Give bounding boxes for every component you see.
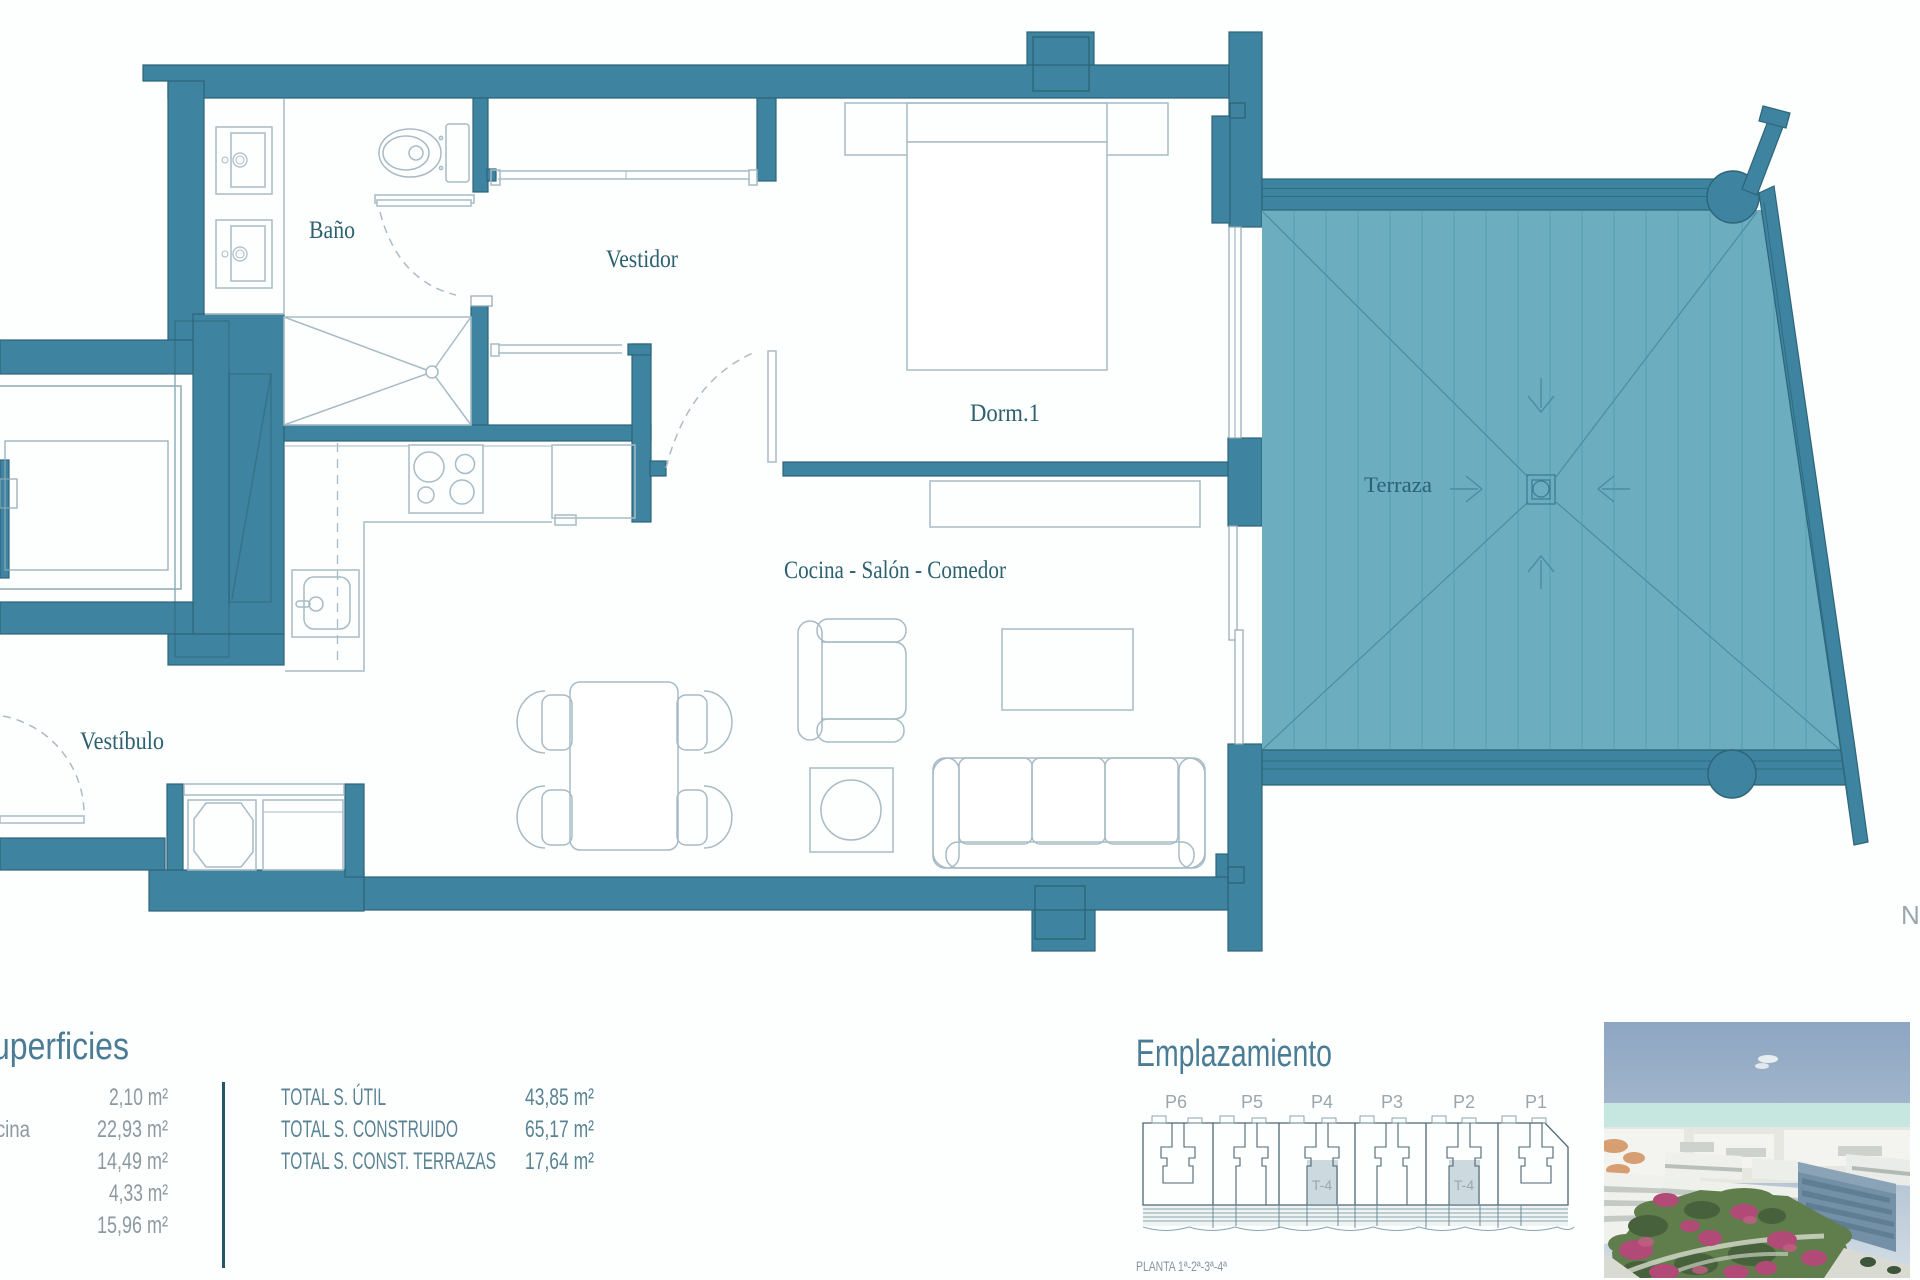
svg-text:43,85 m²: 43,85 m² xyxy=(525,1084,594,1111)
svg-text:P4: P4 xyxy=(1311,1092,1333,1112)
svg-text:Terraza: Terraza xyxy=(1364,472,1432,497)
svg-text:P2: P2 xyxy=(1453,1092,1475,1112)
svg-text:2,10 m²: 2,10 m² xyxy=(109,1084,168,1111)
svg-text:PLANTA 1ª-2ª-3ª-4ª: PLANTA 1ª-2ª-3ª-4ª xyxy=(1136,1258,1228,1274)
svg-text:P5: P5 xyxy=(1241,1092,1263,1112)
svg-text:T-4: T-4 xyxy=(1454,1177,1474,1193)
svg-text:22,93 m²: 22,93 m² xyxy=(97,1116,168,1143)
svg-text:Vestíbulo: Vestíbulo xyxy=(80,728,164,755)
svg-text:P6: P6 xyxy=(1165,1092,1187,1112)
svg-text:17,64 m²: 17,64 m² xyxy=(525,1148,594,1175)
svg-text:TOTAL S. CONSTRUIDO: TOTAL S. CONSTRUIDO xyxy=(281,1116,458,1143)
svg-text:4,33 m²: 4,33 m² xyxy=(109,1180,168,1207)
svg-text:14,49 m²: 14,49 m² xyxy=(97,1148,168,1175)
svg-text:Baño: Baño xyxy=(309,217,355,244)
svg-text:TOTAL S. CONST. TERRAZAS: TOTAL S. CONST. TERRAZAS xyxy=(281,1148,496,1175)
svg-text:Cocina - Salón - Comedor: Cocina - Salón - Comedor xyxy=(784,557,1007,584)
svg-text:TOTAL S. ÚTIL: TOTAL S. ÚTIL xyxy=(281,1084,386,1111)
svg-text:P1: P1 xyxy=(1525,1092,1547,1112)
svg-text:15,96 m²: 15,96 m² xyxy=(97,1212,168,1239)
svg-text:T-4: T-4 xyxy=(1312,1177,1332,1193)
svg-text:Cocina: Cocina xyxy=(0,1116,30,1142)
svg-text:Vestidor: Vestidor xyxy=(606,246,679,273)
svg-text:65,17 m²: 65,17 m² xyxy=(525,1116,594,1143)
svg-text:P3: P3 xyxy=(1381,1092,1403,1112)
svg-text:Emplazamiento: Emplazamiento xyxy=(1136,1033,1332,1075)
svg-text:Dorm.1: Dorm.1 xyxy=(970,400,1040,427)
svg-text:superficies: superficies xyxy=(0,1026,129,1068)
svg-text:N: N xyxy=(1901,900,1920,930)
